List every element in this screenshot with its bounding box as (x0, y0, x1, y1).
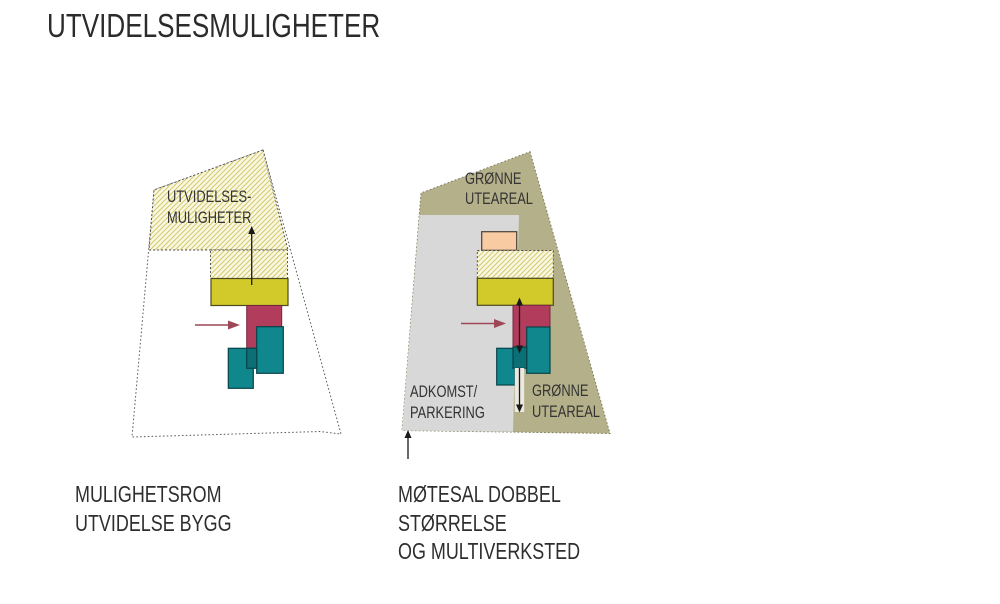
right-yellow-block (477, 278, 553, 305)
right-green-outdoor-bottom-label: GRØNNE UTEAREAL (532, 381, 600, 424)
left-expansion-area-label-line1: UTVIDELSES- (167, 187, 251, 208)
left-teal-block-middle (247, 348, 257, 368)
page: UTVIDELSESMULIGHETER UTVIDELSES- MULIGHE… (0, 0, 1000, 604)
left-diagram-caption: MULIGHETSROM UTVIDELSE BYGG (75, 480, 232, 537)
left-caption-line1: MULIGHETSROM (75, 480, 232, 509)
left-expansion-area-label: UTVIDELSES- MULIGHETER (167, 187, 251, 228)
left-teal-block-right (257, 327, 284, 374)
left-yellow-block (211, 279, 288, 306)
right-green-bottom-line2: UTEAREAL (532, 402, 600, 424)
right-extension-hatch-block (477, 251, 553, 279)
right-caption-line2: STØRRELSE (398, 509, 580, 538)
right-green-top-line1: GRØNNE (465, 169, 533, 190)
right-green-top-line2: UTEAREAL (465, 189, 533, 210)
right-peach-block (482, 232, 517, 251)
right-parking-line1: ADKOMST/ (410, 382, 485, 403)
right-teal-block-right (527, 327, 550, 373)
right-teal-block-middle (513, 347, 527, 368)
right-green-outdoor-top-label: GRØNNE UTEAREAL (465, 169, 533, 210)
left-extension-hatch-block (211, 250, 288, 279)
right-access-parking-label: ADKOMST/ PARKERING (410, 382, 485, 423)
right-caption-line3: OG MULTIVERKSTED (398, 537, 580, 566)
right-caption-line1: MØTESAL DOBBEL (398, 480, 580, 509)
left-expansion-area-label-line2: MULIGHETER (167, 208, 251, 229)
left-caption-line2: UTVIDELSE BYGG (75, 509, 232, 538)
page-title: UTVIDELSESMULIGHETER (47, 6, 380, 46)
right-teal-block-left (497, 348, 515, 385)
right-diagram-caption: MØTESAL DOBBEL STØRRELSE OG MULTIVERKSTE… (398, 480, 580, 566)
right-green-bottom-line1: GRØNNE (532, 381, 600, 403)
right-parking-line2: PARKERING (410, 403, 485, 424)
